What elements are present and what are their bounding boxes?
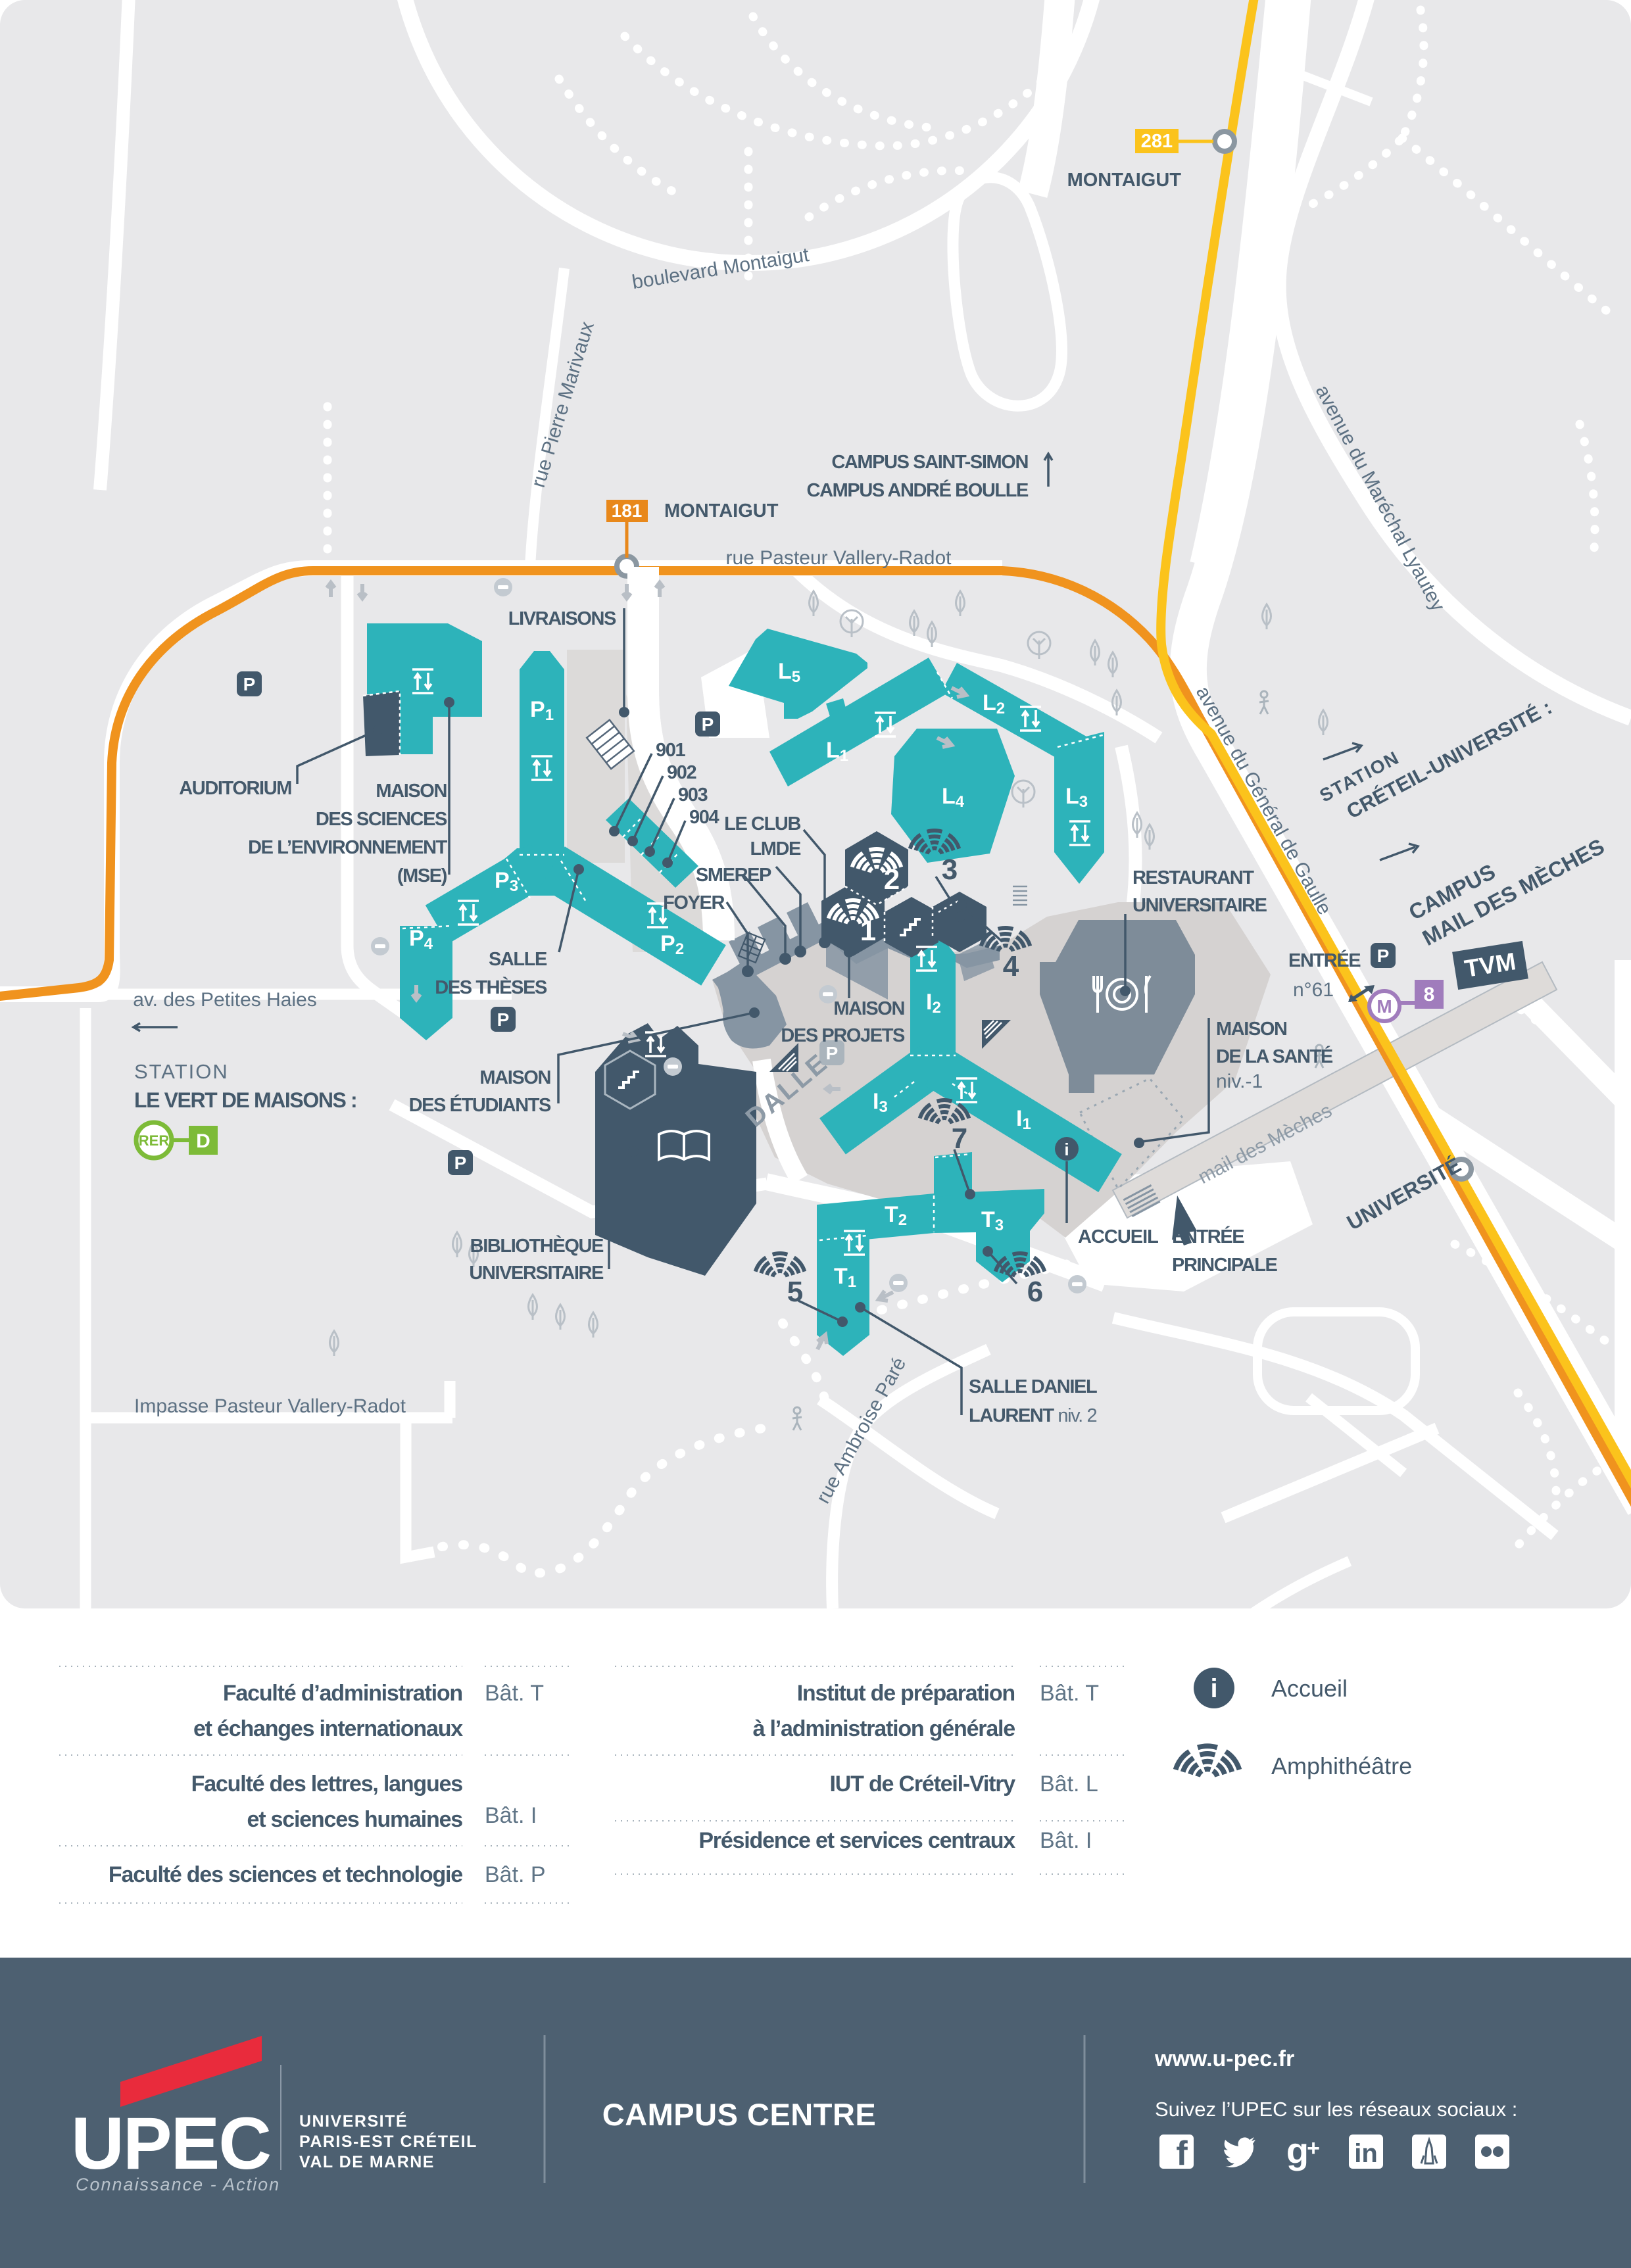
svg-text:MONTAIGUT: MONTAIGUT: [1067, 170, 1182, 191]
svg-text:CAMPUS SAINT-SIMON: CAMPUS SAINT-SIMON: [831, 452, 1028, 473]
svg-text:niv.-1: niv.-1: [1216, 1071, 1263, 1092]
svg-text:UPEC: UPEC: [71, 2102, 270, 2184]
svg-text:904: 904: [689, 807, 719, 828]
svg-text:3: 3: [942, 854, 958, 886]
svg-text:Suivez l’UPEC sur les réseaux: Suivez l’UPEC sur les réseaux sociaux :: [1155, 2098, 1517, 2121]
svg-text:Faculté des sciences et techno: Faculté des sciences et technologie: [109, 1862, 462, 1887]
svg-text:2: 2: [884, 863, 900, 896]
svg-text:LIVRAISONS: LIVRAISONS: [508, 608, 616, 629]
svg-text:Connaissance - Action: Connaissance - Action: [76, 2175, 280, 2194]
svg-text:Amphithéâtre: Amphithéâtre: [1271, 1752, 1412, 1779]
svg-text:i: i: [1064, 1140, 1069, 1159]
svg-text:av. des Petites Haies: av. des Petites Haies: [133, 989, 317, 1011]
svg-text:D: D: [196, 1130, 210, 1152]
svg-text:UNIVERSITÉ: UNIVERSITÉ: [299, 2111, 408, 2131]
svg-text:CAMPUS CENTRE: CAMPUS CENTRE: [602, 2097, 876, 2132]
svg-text:Présidence et services centrau: Présidence et services centraux: [698, 1828, 1015, 1853]
svg-text:MAISON: MAISON: [479, 1067, 550, 1088]
svg-text:LE VERT DE MAISONS :: LE VERT DE MAISONS :: [134, 1088, 356, 1112]
svg-text:Bât. L: Bât. L: [1040, 1772, 1098, 1797]
svg-text:DES THÈSES: DES THÈSES: [435, 976, 547, 998]
svg-text:DE LA SANTÉ: DE LA SANTÉ: [1216, 1045, 1333, 1067]
svg-text:ENTRÉE: ENTRÉE: [1288, 949, 1361, 971]
svg-text:RESTAURANT: RESTAURANT: [1132, 867, 1254, 888]
svg-text:rue Pasteur Vallery-Radot: rue Pasteur Vallery-Radot: [726, 547, 952, 569]
svg-text:PRINCIPALE: PRINCIPALE: [1172, 1255, 1278, 1276]
svg-text:4: 4: [1003, 950, 1019, 982]
svg-text:DES SCIENCES: DES SCIENCES: [316, 809, 447, 830]
svg-text:MAISON: MAISON: [376, 781, 447, 802]
svg-text:DES PROJETS: DES PROJETS: [781, 1025, 905, 1046]
svg-text:à l’administration générale: à l’administration générale: [753, 1716, 1015, 1741]
svg-text:8: 8: [1424, 984, 1435, 1005]
svg-text:LAURENT niv. 2: LAURENT niv. 2: [969, 1405, 1096, 1426]
svg-text:et sciences humaines: et sciences humaines: [247, 1807, 462, 1832]
svg-text:MAISON: MAISON: [1216, 1019, 1287, 1040]
svg-text:SALLE DANIEL: SALLE DANIEL: [969, 1376, 1097, 1397]
svg-text:Bât. T: Bât. T: [1040, 1681, 1099, 1706]
svg-text:Bât. P: Bât. P: [485, 1862, 546, 1887]
svg-text:RER: RER: [139, 1132, 170, 1149]
svg-text:MONTAIGUT: MONTAIGUT: [664, 500, 779, 521]
svg-text:PARIS-EST CRÉTEIL: PARIS-EST CRÉTEIL: [299, 2132, 477, 2151]
svg-text:www.u-pec.fr: www.u-pec.fr: [1154, 2046, 1294, 2071]
svg-text:+: +: [1307, 2136, 1320, 2161]
svg-text:6: 6: [1027, 1276, 1043, 1308]
svg-text:Faculté des lettres, langues: Faculté des lettres, langues: [191, 1772, 463, 1797]
svg-text:902: 902: [667, 762, 696, 783]
svg-text:DES ÉTUDIANTS: DES ÉTUDIANTS: [409, 1094, 551, 1116]
svg-text:Accueil: Accueil: [1271, 1675, 1348, 1702]
svg-text:1: 1: [860, 915, 876, 947]
svg-text:n°61: n°61: [1293, 979, 1334, 1001]
svg-text:901: 901: [656, 740, 685, 761]
svg-text:UNIVERSITAIRE: UNIVERSITAIRE: [1132, 895, 1267, 916]
svg-text:181: 181: [612, 500, 643, 521]
svg-text:MAISON: MAISON: [833, 998, 904, 1019]
svg-text:ACCUEIL: ACCUEIL: [1078, 1226, 1158, 1247]
svg-text:Bât. I: Bât. I: [1040, 1828, 1092, 1853]
svg-text:UNIVERSITAIRE: UNIVERSITAIRE: [469, 1263, 604, 1284]
svg-text:STATION: STATION: [134, 1060, 229, 1083]
svg-text:IUT de Créteil-Vitry: IUT de Créteil-Vitry: [830, 1772, 1016, 1797]
svg-text:Impasse Pasteur Vallery-Radot: Impasse Pasteur Vallery-Radot: [134, 1395, 406, 1417]
svg-text:et échanges internationaux: et échanges internationaux: [193, 1716, 463, 1741]
svg-text:Faculté d’administration: Faculté d’administration: [223, 1681, 462, 1706]
svg-text:Bât. T: Bât. T: [485, 1681, 544, 1706]
svg-text:903: 903: [678, 784, 708, 806]
svg-text:Institut de préparation: Institut de préparation: [797, 1681, 1015, 1706]
svg-text:AUDITORIUM: AUDITORIUM: [179, 778, 291, 799]
svg-text:g: g: [1286, 2130, 1309, 2171]
svg-text:Bât. I: Bât. I: [485, 1803, 537, 1828]
svg-text:LMDE: LMDE: [750, 838, 801, 859]
svg-text:(MSE): (MSE): [397, 865, 447, 886]
svg-text:i: i: [1210, 1674, 1217, 1703]
svg-text:LE CLUB: LE CLUB: [724, 813, 800, 834]
svg-text:SALLE: SALLE: [489, 949, 547, 970]
svg-text:M: M: [1376, 996, 1392, 1017]
svg-text:5: 5: [787, 1276, 803, 1308]
svg-text:f: f: [1176, 2135, 1188, 2173]
svg-text:CAMPUS ANDRÉ BOULLE: CAMPUS ANDRÉ BOULLE: [807, 479, 1029, 501]
svg-text:281: 281: [1141, 131, 1173, 152]
svg-text:BIBLIOTHÈQUE: BIBLIOTHÈQUE: [470, 1234, 604, 1257]
svg-text:FOYER: FOYER: [663, 892, 725, 913]
svg-text:SMEREP: SMEREP: [696, 865, 771, 886]
svg-text:in: in: [1354, 2139, 1378, 2168]
svg-text:VAL DE MARNE: VAL DE MARNE: [299, 2153, 435, 2171]
svg-text:DE L’ENVIRONNEMENT: DE L’ENVIRONNEMENT: [248, 837, 448, 858]
